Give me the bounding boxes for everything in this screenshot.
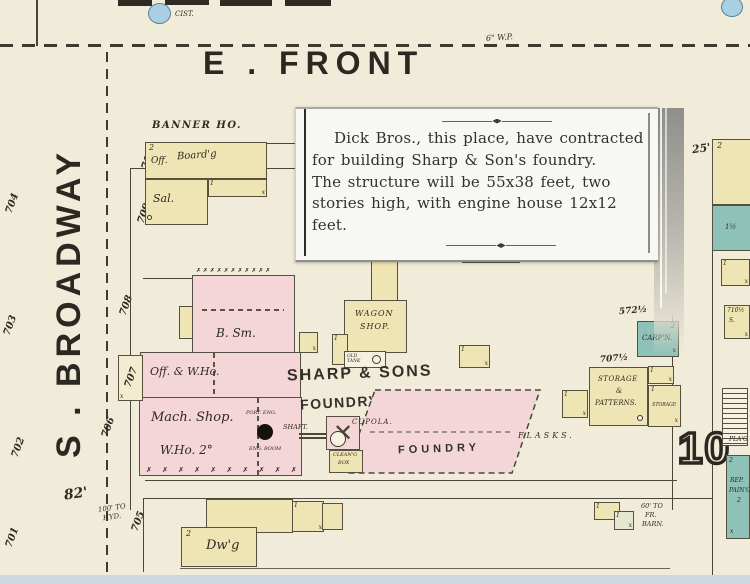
- cleaning-box-label2: BOX: [338, 461, 349, 467]
- shed: 1 x: [459, 345, 490, 368]
- shed: 1 x: [614, 511, 634, 530]
- lot-line: [36, 0, 38, 46]
- planing-label: PLA'G: [729, 437, 748, 444]
- story-count: 1: [723, 260, 727, 267]
- cistern-label: CIST.: [175, 11, 194, 19]
- story-count: 2: [729, 458, 733, 465]
- shed-label: S.: [729, 318, 735, 325]
- wagon-shop-label2: SHOP.: [360, 323, 390, 332]
- divider-diamond-icon: [496, 243, 505, 248]
- shed: 1 x: [292, 501, 324, 532]
- house-number: 705: [130, 510, 147, 533]
- paint-label: PAIN'G: [729, 488, 750, 495]
- article-text: Dick Bros., this place, have contracted …: [312, 128, 644, 237]
- story-count: 2: [149, 144, 154, 153]
- divider-line: [506, 245, 556, 246]
- lot-line: [130, 168, 131, 510]
- newspaper-clipping: Dick Bros., this place, have contracted …: [295, 107, 658, 262]
- shed: 1 x: [721, 259, 750, 286]
- page-curl-highlight: [660, 108, 662, 308]
- wagon-shop-label: WAGON: [355, 310, 394, 319]
- machine-shop-label: Mach. Shop.: [151, 411, 234, 425]
- barn-note3: BARN.: [642, 521, 664, 528]
- story-count: 1: [461, 346, 465, 353]
- hatch-marks: ✗ ✗ ✗ ✗ ✗ ✗ ✗ ✗ ✗ ✗ ✗: [196, 268, 292, 275]
- cutoff-text-fragment: [118, 0, 152, 6]
- saloon-label: Sal.: [153, 193, 174, 205]
- story-count: 1: [651, 387, 655, 394]
- clipping-page-curl-shadow: [654, 108, 684, 356]
- opening-mark: x: [313, 345, 316, 352]
- story-count: 2: [737, 498, 741, 505]
- divider-line: [446, 245, 496, 246]
- shed-710-half: 710½ S. x: [724, 305, 750, 339]
- repair-label: REP.: [730, 478, 744, 485]
- story-count: 1: [616, 512, 620, 519]
- circle-mark: [637, 415, 643, 421]
- shutter-hatch-row: ✗ ✗ ✗ ✗ ✗ ✗ ✗ ✗ ✗ ✗ ✗: [146, 467, 298, 475]
- storage-amp: &: [616, 388, 622, 396]
- opening-mark: x: [583, 410, 586, 417]
- street-name-broadway: S . BROADWAY: [52, 148, 86, 458]
- storage-label: STORAGE: [598, 376, 638, 384]
- opening-mark: x: [745, 331, 748, 338]
- story-count: 1: [294, 502, 298, 509]
- warehouse-2nd-label: W.Ho. 2°: [160, 444, 213, 457]
- story-count: 1: [650, 367, 654, 374]
- patterns-label: PATTERNS.: [595, 400, 636, 408]
- article-divider: [446, 243, 556, 248]
- cutoff-text-fragment: [165, 0, 209, 5]
- tank-circle: [372, 355, 381, 364]
- article-divider: [442, 118, 552, 124]
- office-label: Off.: [151, 157, 168, 167]
- cistern-icon: [148, 3, 171, 24]
- storage-east-building: STORAGE 1 x: [648, 385, 681, 427]
- lot-line: [143, 498, 144, 572]
- shed: [322, 503, 343, 530]
- banner-house-label: BANNER HO.: [152, 120, 242, 131]
- divider-line: [502, 121, 552, 122]
- opening-mark: x: [485, 360, 488, 367]
- house-number: 708: [118, 294, 135, 317]
- dwelling-label: Dw'g: [206, 539, 239, 553]
- dimension-label: 82': [63, 485, 89, 504]
- wagon-shop-tower: [371, 258, 398, 301]
- house-number: 704: [4, 192, 21, 215]
- blacksmith-building: [192, 275, 295, 353]
- old-tank-label: OLD TANK: [347, 355, 367, 365]
- storage-label: STORAGE: [652, 402, 676, 408]
- sanborn-map: CIST. 6" W.P. E . FRONT S . BROADWAY 704…: [0, 0, 750, 584]
- house-number: 702: [10, 436, 27, 459]
- cutoff-text-fragment: [220, 0, 272, 6]
- roof-dashes: [202, 309, 284, 311]
- address-label: 710½: [727, 308, 744, 315]
- shed: x: [299, 332, 318, 353]
- cleaning-box: CLEAN'G BOX: [329, 450, 363, 473]
- right-teal-building: 1½: [712, 205, 750, 251]
- story-count: 1: [596, 503, 600, 510]
- dwelling-building: 2 Dw'g: [181, 527, 257, 567]
- machine-shop-building: [139, 397, 302, 476]
- story-count: 2: [186, 530, 191, 539]
- column-rule: [648, 113, 650, 253]
- shaft-line: [299, 437, 326, 439]
- shaft-line: [299, 433, 326, 435]
- opening-mark: x: [669, 376, 672, 383]
- circle-mark: [147, 215, 152, 220]
- cupola-circle: [330, 431, 346, 447]
- address-label: 707½: [600, 354, 629, 366]
- column-rule: [304, 109, 306, 256]
- opening-mark: x: [120, 393, 123, 400]
- portable-engine-label: PORT. ENG.: [246, 411, 276, 417]
- story-count: 1: [334, 335, 338, 342]
- flasks-label: FLASKS.: [518, 432, 575, 441]
- barn-note: 60' TO: [641, 503, 663, 510]
- house-number: 703: [2, 314, 19, 337]
- lot-line: [266, 143, 298, 144]
- street-name-front: E . FRONT: [203, 47, 424, 79]
- sharp-sons-title: SHARP & SONS: [287, 363, 433, 384]
- repair-paint-building: 2 REP. PAIN'G 2 x: [726, 455, 750, 539]
- address-label: 572½: [619, 306, 648, 318]
- shed: 1 x: [648, 366, 674, 384]
- barn-note2: FR.: [645, 512, 656, 519]
- story-count: 1: [210, 180, 214, 187]
- house-number: 706: [100, 416, 117, 439]
- right-building: 2: [712, 139, 750, 205]
- opening-mark: x: [745, 278, 748, 285]
- opening-mark: x: [262, 189, 265, 196]
- hydrant-note2: HYD.: [103, 513, 122, 523]
- divider-diamond-icon: [492, 119, 501, 124]
- story-count: 1½: [725, 224, 736, 232]
- cutoff-text-fragment: [285, 0, 331, 6]
- blacksmith-label: B. Sm.: [216, 327, 256, 340]
- dimension-label: 25': [691, 142, 711, 157]
- lot-line: [180, 568, 670, 569]
- office-warehouse-label: Off. & W.Ho.: [150, 366, 220, 378]
- shaft-label: SHAFT.: [283, 424, 308, 431]
- page-curl-highlight: [665, 108, 667, 293]
- cupola-label: CUPOLA.: [352, 419, 393, 427]
- divider-line: [442, 121, 492, 122]
- engine-room-label: ENG. ROOM: [249, 447, 281, 453]
- shed: 1 x: [562, 390, 588, 418]
- cistern-icon: [721, 0, 743, 17]
- chimney-icon: [257, 424, 273, 440]
- scan-edge-band: [0, 575, 750, 584]
- house-number: 701: [4, 526, 21, 549]
- water-pipe-label: 6" W.P.: [486, 33, 514, 44]
- opening-mark: x: [730, 529, 733, 536]
- story-count: 1: [564, 391, 568, 398]
- storage-patterns-building: STORAGE & PATTERNS.: [589, 367, 648, 426]
- story-count: 2: [717, 142, 722, 151]
- opening-mark: x: [629, 522, 632, 529]
- fence-line: [145, 480, 677, 481]
- banner-annex: 1 x: [208, 179, 267, 197]
- cleaning-box-label: CLEAN'G: [333, 453, 357, 459]
